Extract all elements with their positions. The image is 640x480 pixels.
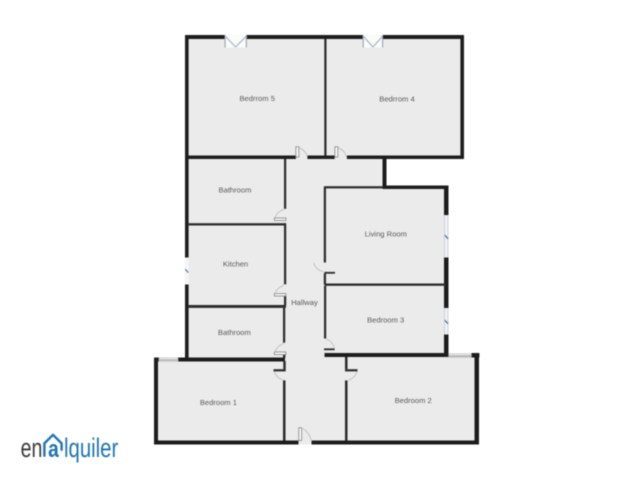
svg-text:Hallway: Hallway — [291, 298, 318, 307]
svg-text:Kitchen: Kitchen — [223, 260, 248, 269]
svg-text:Bedroom 2: Bedroom 2 — [395, 396, 432, 405]
svg-text:Living Room: Living Room — [365, 230, 407, 239]
svg-text:a: a — [48, 435, 59, 463]
svg-text:Bathroom: Bathroom — [218, 328, 251, 337]
svg-text:Bedroom 1: Bedroom 1 — [200, 398, 237, 407]
svg-text:en: en — [21, 433, 43, 463]
svg-text:lquiler: lquiler — [64, 433, 118, 462]
svg-text:Bathroom: Bathroom — [219, 186, 252, 195]
svg-text:Bedrrom 5: Bedrrom 5 — [239, 94, 274, 103]
svg-text:Bedroom 3: Bedroom 3 — [367, 316, 404, 325]
svg-text:Bedrrom 4: Bedrrom 4 — [379, 95, 414, 104]
